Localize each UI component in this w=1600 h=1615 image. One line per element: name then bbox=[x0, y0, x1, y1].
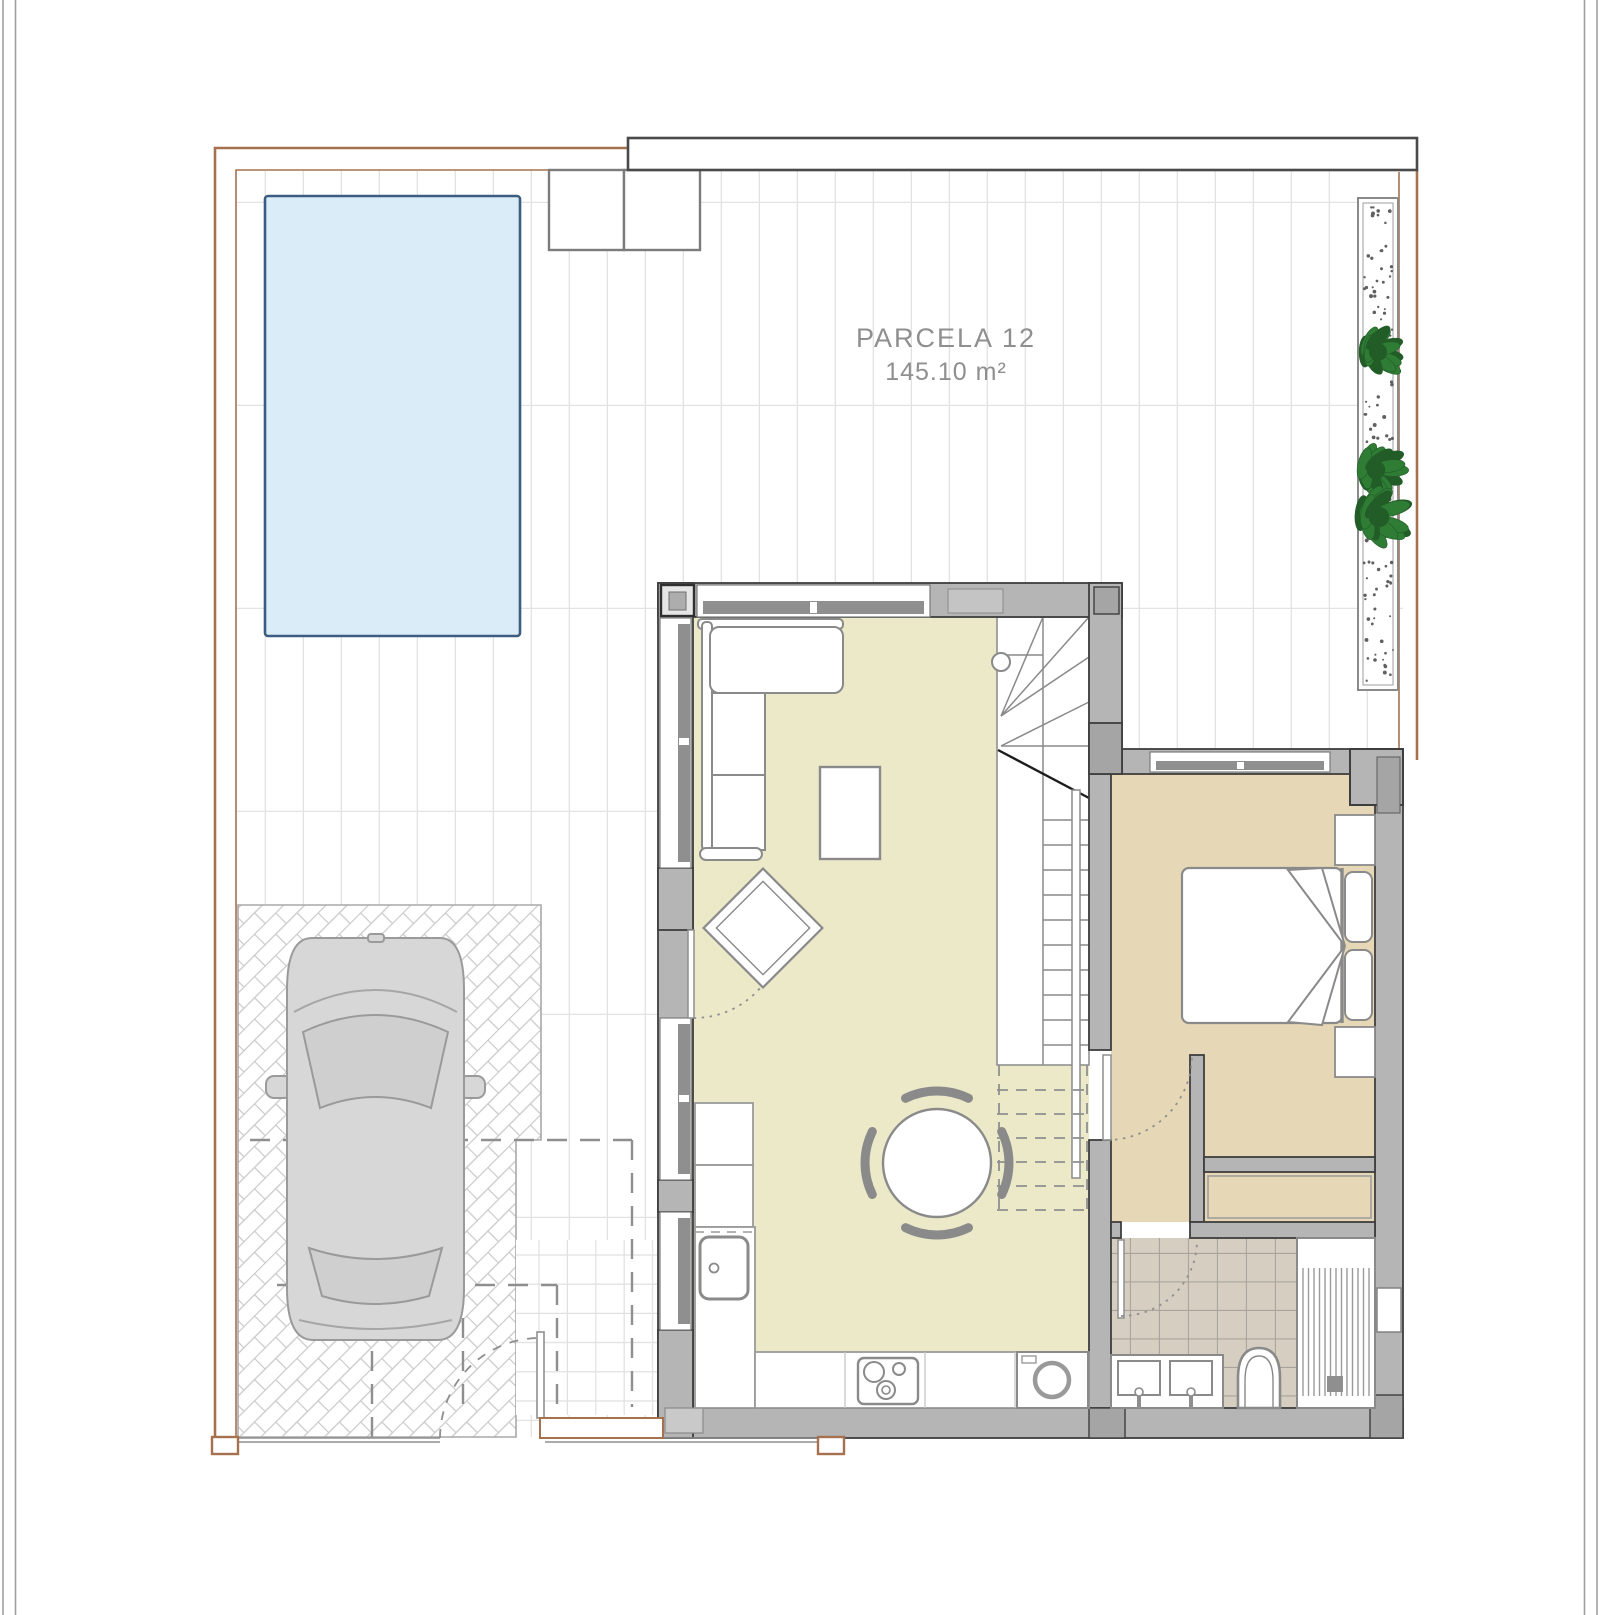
wall-hall-bath-left bbox=[1089, 1140, 1111, 1408]
window-kitchen-left-1 bbox=[660, 1018, 691, 1180]
stair-handrail bbox=[1072, 790, 1080, 1178]
wall-bedroom-closet bbox=[1204, 1157, 1375, 1172]
wall-bottom bbox=[658, 1408, 1403, 1438]
shower bbox=[1297, 1238, 1375, 1408]
car bbox=[266, 934, 485, 1340]
coffee-table bbox=[820, 767, 880, 859]
vanity bbox=[1111, 1355, 1223, 1408]
floor-plan-drawing: PARCELA 12 145.10 m² bbox=[0, 0, 1600, 1615]
outdoor-storage-boxes bbox=[549, 170, 700, 250]
nightstand-top bbox=[1335, 815, 1375, 865]
car-front-notch bbox=[368, 934, 384, 942]
wall-bathroom-top-jamb bbox=[1111, 1222, 1121, 1238]
window-living-left bbox=[660, 618, 691, 868]
wall-living-bedroom bbox=[1089, 774, 1111, 1050]
window-bedroom-top bbox=[1150, 752, 1330, 772]
parcel-name-label: PARCELA 12 bbox=[856, 323, 1036, 353]
car-windshield bbox=[303, 1015, 448, 1108]
stair-newel-post bbox=[992, 653, 1010, 671]
floor-plan-sheet: PARCELA 12 145.10 m² bbox=[0, 0, 1600, 1615]
planter-strip bbox=[1353, 198, 1413, 690]
swimming-pool bbox=[265, 196, 520, 636]
window-living-top bbox=[697, 585, 930, 617]
kitchen-tall-unit-2 bbox=[695, 1165, 753, 1227]
wall-bathroom-top bbox=[1190, 1222, 1375, 1238]
entry-step bbox=[540, 1418, 663, 1438]
parcel-area-label: 145.10 m² bbox=[885, 358, 1007, 386]
roof-overhang bbox=[628, 138, 1417, 170]
pillow-top bbox=[1345, 872, 1372, 942]
pedestrian-gate-leaf bbox=[537, 1332, 544, 1418]
kitchen-hob bbox=[858, 1358, 918, 1404]
window-shower bbox=[1377, 1288, 1401, 1332]
nightstand-bottom bbox=[1335, 1027, 1375, 1077]
double-bed bbox=[1182, 868, 1372, 1025]
wall-right bbox=[1375, 749, 1403, 1437]
kitchen-sink bbox=[700, 1237, 748, 1299]
kitchen-faucet bbox=[710, 1264, 719, 1273]
pillow-bottom bbox=[1345, 950, 1372, 1020]
front-fence bbox=[233, 1438, 818, 1442]
shower-drain bbox=[1327, 1376, 1343, 1392]
wall-closet-nook bbox=[1190, 1055, 1204, 1222]
window-kitchen-left-2 bbox=[660, 1212, 691, 1330]
toilet bbox=[1238, 1348, 1280, 1408]
kitchen-tall-unit-1 bbox=[695, 1103, 753, 1165]
washing-machine bbox=[1017, 1352, 1088, 1408]
terrace-door-leaf bbox=[688, 930, 694, 1018]
dining-table bbox=[883, 1109, 991, 1217]
bedroom-door-leaf bbox=[1103, 1055, 1111, 1140]
bathroom-door-leaf bbox=[1118, 1240, 1124, 1318]
